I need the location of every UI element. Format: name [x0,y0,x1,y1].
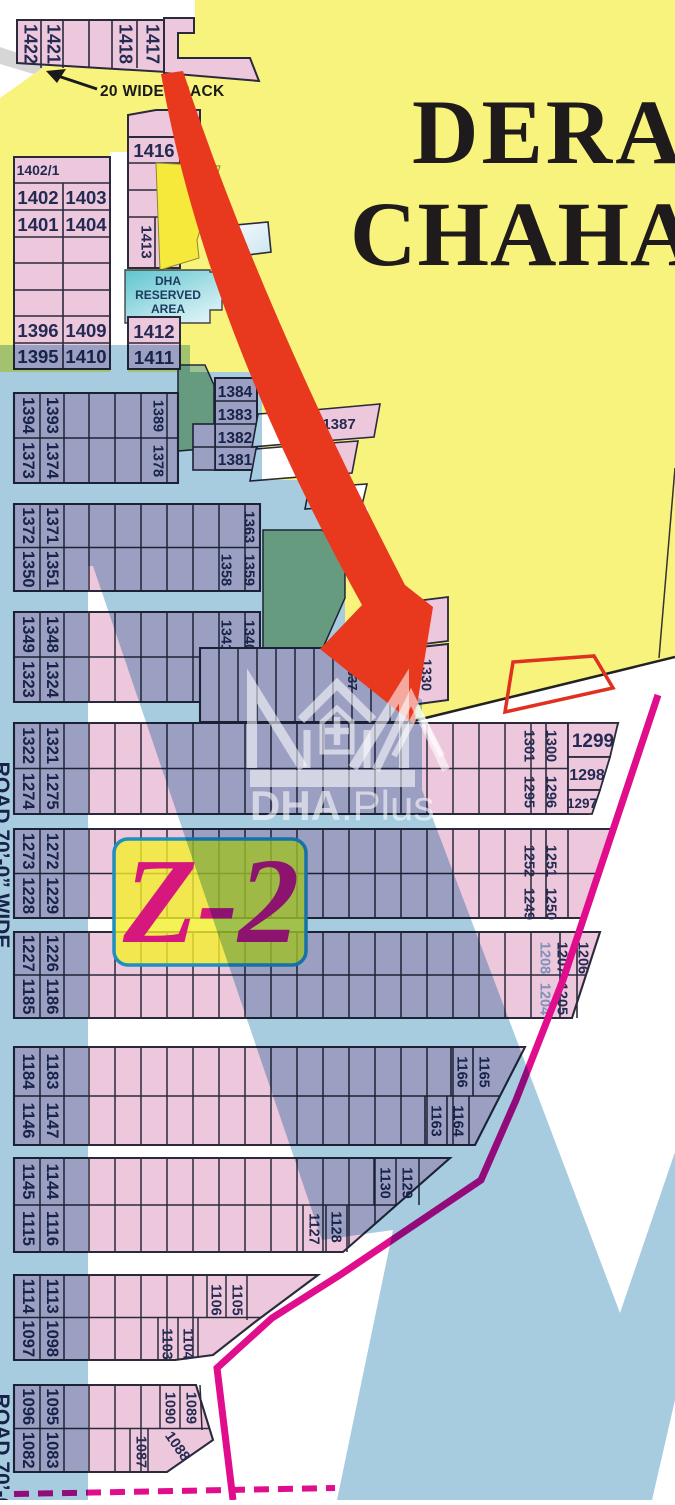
svg-text:1103: 1103 [159,1328,175,1359]
svg-text:1409: 1409 [65,320,106,341]
svg-text:1299: 1299 [572,731,614,752]
svg-text:1104: 1104 [180,1328,196,1359]
svg-text:1105: 1105 [229,1284,245,1315]
svg-text:1249: 1249 [521,888,537,920]
svg-text:CHAHAN: CHAHAN [350,183,675,285]
svg-text:DHA.Plus: DHA.Plus [250,782,434,829]
svg-text:1402: 1402 [17,187,58,208]
svg-text:1089: 1089 [183,1392,199,1424]
svg-text:DHA: DHA [155,274,181,288]
svg-text:1297: 1297 [567,796,597,811]
svg-text:1418: 1418 [116,24,136,64]
svg-text:1413: 1413 [138,225,155,258]
svg-text:1300: 1300 [543,730,559,762]
svg-text:1252: 1252 [521,845,537,877]
svg-text:1087: 1087 [133,1436,149,1468]
svg-text:1295: 1295 [521,776,537,808]
svg-text:AREA: AREA [151,302,185,316]
svg-text:1251: 1251 [543,845,559,877]
svg-text:1250: 1250 [543,888,559,920]
svg-text:1401: 1401 [17,214,58,235]
svg-text:1298: 1298 [569,767,605,784]
svg-text:1208: 1208 [537,942,553,974]
svg-text:1422: 1422 [21,24,41,64]
svg-text:1412: 1412 [133,321,174,342]
svg-text:DERA: DERA [412,81,675,183]
svg-text:1090: 1090 [162,1392,178,1424]
svg-text:1416: 1416 [133,140,174,161]
svg-text:1296: 1296 [543,776,559,808]
svg-text:1403: 1403 [65,187,106,208]
svg-text:RESERVED: RESERVED [135,288,201,302]
svg-text:1106: 1106 [208,1284,224,1315]
svg-text:1402/1: 1402/1 [17,162,60,178]
svg-text:1396: 1396 [17,320,58,341]
svg-text:1421: 1421 [44,24,64,64]
svg-text:20 WIDE TRACK: 20 WIDE TRACK [100,83,225,100]
svg-text:1417: 1417 [143,24,163,64]
svg-text:1301: 1301 [521,730,537,762]
svg-text:1404: 1404 [65,214,107,235]
